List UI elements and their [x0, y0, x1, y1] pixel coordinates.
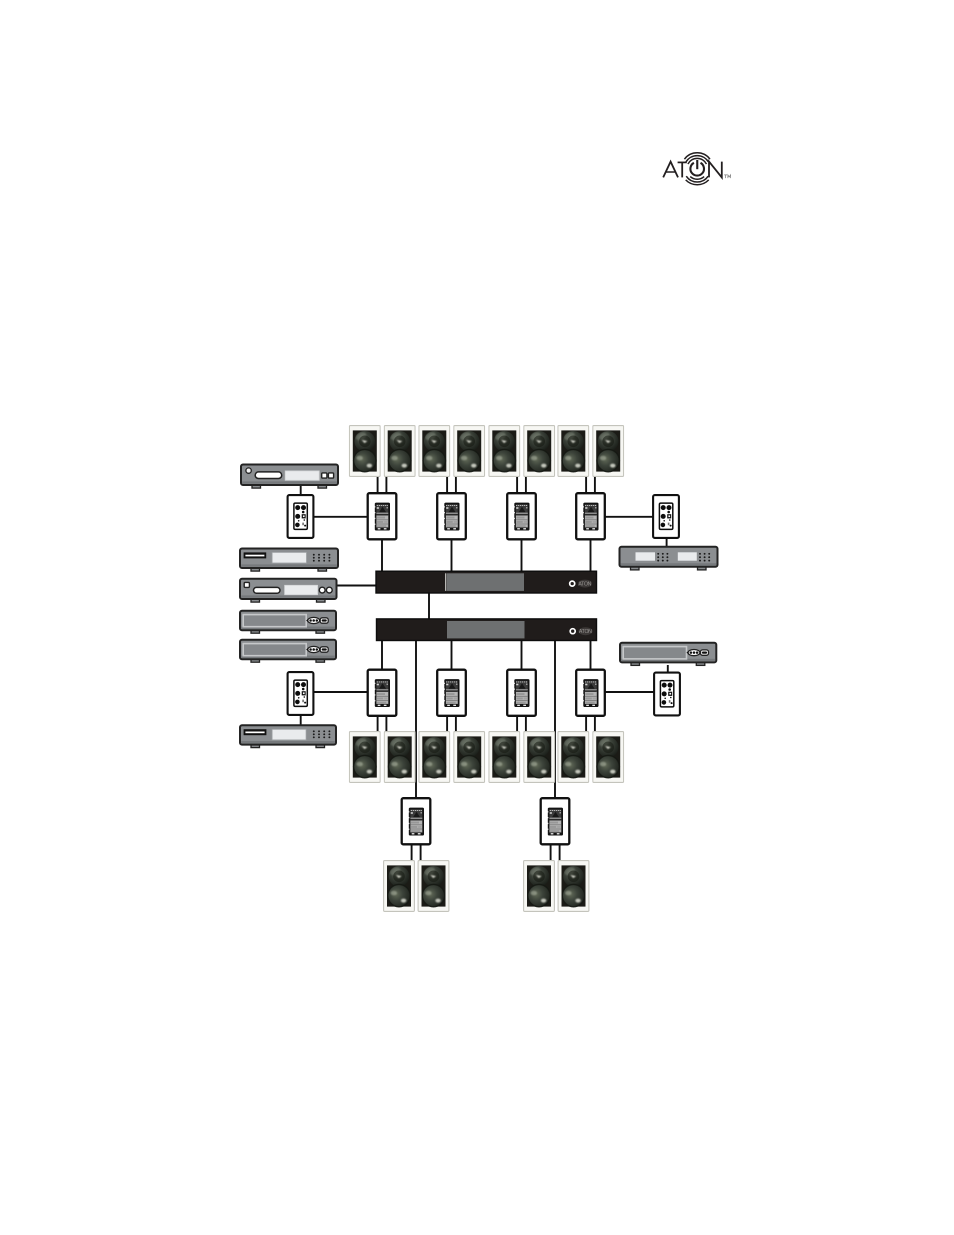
svg-text:ATON: ATON — [578, 581, 591, 587]
svg-text:ATON: ATON — [579, 629, 592, 635]
